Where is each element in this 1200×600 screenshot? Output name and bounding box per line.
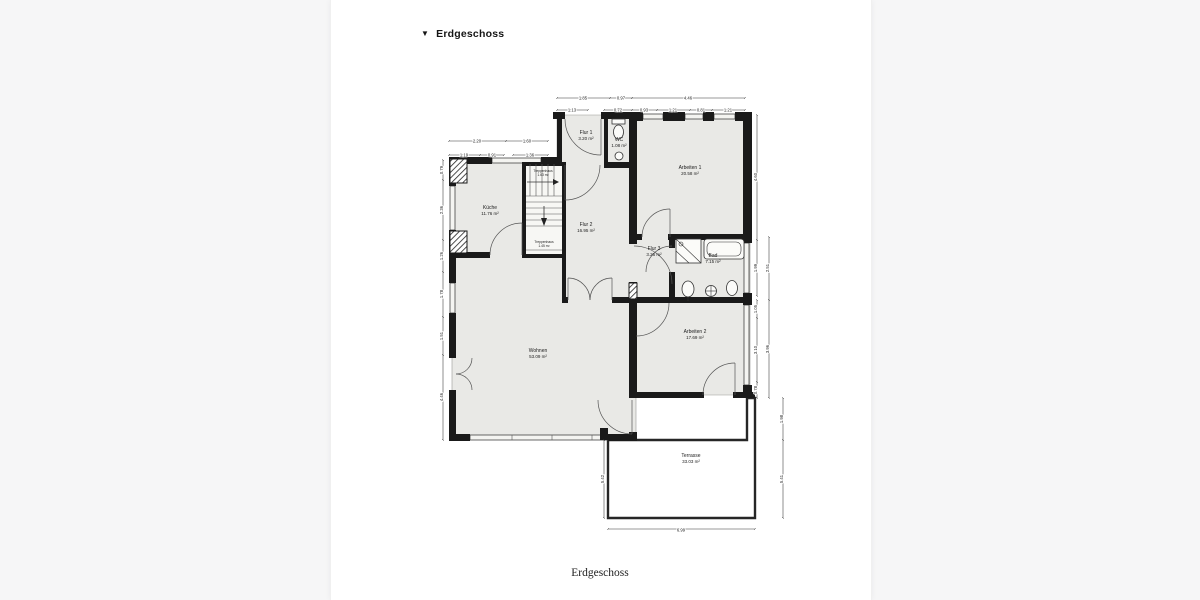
room-label: Arbeiten 120.58 m²	[679, 165, 702, 176]
dimension-label: 2.20	[473, 139, 482, 144]
dimension-label: 1.60	[523, 139, 532, 144]
dimension-label: 1.98	[779, 414, 784, 423]
dimension-label: 2.36	[439, 205, 444, 214]
room-label: Flur 33.26 m²	[646, 246, 662, 257]
dimension-label: 1.26	[439, 251, 444, 260]
bath-sink-icon	[682, 281, 694, 297]
dimension-label: 4.46	[439, 392, 444, 401]
dimension-label: 0.81	[697, 108, 706, 113]
wc-sink-icon	[615, 152, 623, 160]
screenshot-root: ▼ Erdgeschoss	[0, 0, 1200, 600]
dimension-label: 4.60	[753, 172, 758, 181]
dimension-label: 1.13	[568, 108, 577, 113]
room-label: Flur 13.20 m²	[578, 130, 594, 141]
plan-caption: Erdgeschoss	[330, 567, 870, 579]
dimension-label: 5.42	[600, 474, 605, 483]
dimension-label: 1.51	[439, 331, 444, 340]
bath-toilet-icon	[727, 281, 738, 296]
dimension-label: 4.46	[684, 96, 693, 101]
dimension-label: 2.51	[765, 263, 770, 272]
dimension-label: 1.85	[579, 96, 588, 101]
dimension-label: 0.93	[640, 108, 649, 113]
room-label: Terrasse33.03 m²	[681, 453, 700, 464]
dimension-label: 0.97	[617, 96, 626, 101]
dimension-label: 1.05	[753, 304, 758, 313]
dimension-label: 1.99	[753, 263, 758, 272]
dimension-label: 1.36	[526, 153, 535, 158]
room-label: Arbeiten 217.69 m²	[684, 329, 707, 340]
dimension-label: 1.19	[460, 153, 469, 158]
dimension-label: 1.78	[439, 289, 444, 298]
dimension-label: 1.21	[669, 108, 678, 113]
dimension-label: 5.41	[779, 474, 784, 483]
wc-toilet-tank-icon	[612, 119, 625, 124]
dimension-label: 6.99	[677, 528, 686, 533]
dimension-label: 1.21	[724, 108, 733, 113]
dimension-label: 0.79	[439, 165, 444, 174]
room-label: Küche11.76 m²	[481, 205, 499, 216]
dimension-label: 3.10	[753, 345, 758, 354]
dimension-label: 0.91	[488, 153, 497, 158]
floorplan-image: Küche11.76 m²Flur 13.20 m²WC1.08 m²Arbei…	[0, 0, 1200, 600]
room-label: Wohnen53.09 m²	[529, 348, 548, 359]
dimension-label: 0.78	[753, 385, 758, 394]
dimension-label: 3.96	[765, 344, 770, 353]
dimension-label: 0.72	[614, 108, 623, 113]
